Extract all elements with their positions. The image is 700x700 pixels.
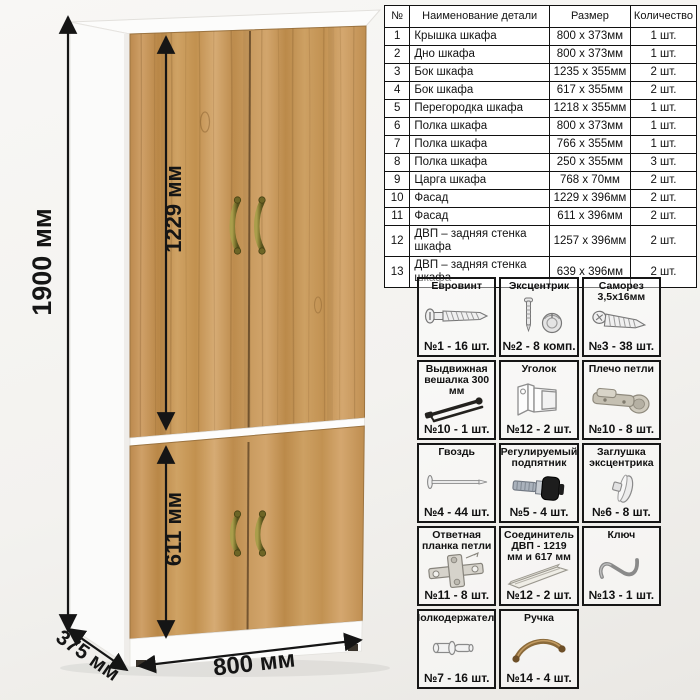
cell-name: Крышка шкафа — [410, 28, 550, 46]
cell-size: 1218 x 355мм — [549, 100, 630, 118]
adjustable-foot-icon — [504, 469, 574, 506]
cell-qty: 3 шт. — [630, 154, 696, 172]
hardware-count: №14 - 4 шт. — [506, 672, 572, 685]
hardware-item-ugolok: Уголок №12 - 2 шт. — [499, 360, 578, 440]
hardware-empty-cell — [582, 609, 661, 689]
table-row: 5Перегородка шкафа1218 x 355мм1 шт. — [385, 100, 697, 118]
hardware-item-podpyatnik: Регулируемый подпятник №5 - 4 шт. — [499, 443, 578, 523]
hardware-item-gvozd: Гвоздь №4 - 44 шт. — [417, 443, 496, 523]
hardware-title: Евровинт — [431, 281, 482, 292]
hardware-count: №10 - 1 шт. — [424, 423, 490, 436]
cell-num: 11 — [385, 208, 410, 226]
hardware-count: №4 - 44 шт. — [424, 506, 490, 519]
lower-door-dim-label: 611 мм — [161, 492, 186, 566]
cell-name: Царга шкафа — [410, 172, 550, 190]
hardware-count: №10 - 8 шт. — [589, 423, 655, 436]
table-row: 12ДВП – задняя стенка шкафа1257 x 396мм2… — [385, 226, 697, 257]
hardware-count: №7 - 16 шт. — [424, 672, 490, 685]
hardware-item-samorez: Саморез 3,5х16мм №3 - 38 шт. — [582, 277, 661, 357]
hardware-item-soedinitel: Соединитель ДВП - 1219 мм и 617 мм №12 -… — [499, 526, 578, 606]
table-row: 1Крышка шкафа800 x 373мм1 шт. — [385, 28, 697, 46]
hardware-count: №3 - 38 шт. — [589, 340, 655, 353]
hardware-item-plecho-petli: Плечо петли №10 - 8 шт. — [582, 360, 661, 440]
cell-size: 800 x 373мм — [549, 28, 630, 46]
col-header-size: Размер — [549, 6, 630, 28]
table-row: 4Бок шкафа617 x 355мм2 шт. — [385, 82, 697, 100]
cell-name: Фасад — [410, 190, 550, 208]
cell-qty: 2 шт. — [630, 190, 696, 208]
key-icon — [586, 541, 656, 589]
hardware-item-eurovint: Евровинт №1 - 16 шт. — [417, 277, 496, 357]
hardware-title: Выдвижная вешалка 300 мм — [420, 364, 493, 397]
hardware-item-polkoderzhatel: Полкодержатель №7 - 16 шт. — [417, 609, 496, 689]
table-row: 7Полка шкафа766 x 355мм1 шт. — [385, 136, 697, 154]
cell-qty: 2 шт. — [630, 226, 696, 257]
table-row: 10Фасад1229 x 396мм2 шт. — [385, 190, 697, 208]
col-header-name: Наименование детали — [410, 6, 550, 28]
hardware-title: Ключ — [607, 530, 635, 541]
cell-num: 8 — [385, 154, 410, 172]
eccentric-cam-icon — [504, 292, 574, 340]
hardware-title: Ручка — [524, 613, 554, 624]
cell-size: 800 x 373мм — [549, 118, 630, 136]
parts-table-header: № Наименование детали Размер Количество — [385, 6, 697, 28]
parts-table: № Наименование детали Размер Количество … — [384, 5, 697, 288]
cell-name: Дно шкафа — [410, 46, 550, 64]
assembly-sheet: 1900 мм 1229 мм 611 мм 800 мм 375 мм № Н… — [0, 0, 700, 700]
hardware-grid: Евровинт №1 - 16 шт. Эксцен — [417, 277, 661, 689]
cell-name: Полка шкафа — [410, 136, 550, 154]
wardrobe-side-panel — [70, 22, 130, 667]
cam-cap-icon — [586, 469, 656, 506]
hardware-title: Гвоздь — [438, 447, 475, 458]
cell-size: 766 x 355мм — [549, 136, 630, 154]
self-tapping-screw-icon — [586, 303, 656, 340]
hardware-item-zaglushka: Заглушка эксцентрика №6 - 8 шт. — [582, 443, 661, 523]
hardware-title: Заглушка эксцентрика — [585, 447, 658, 469]
hdf-connector-icon — [504, 563, 574, 589]
hardware-item-ruchka: Ручка №14 - 4 шт. — [499, 609, 578, 689]
cell-qty: 2 шт. — [630, 64, 696, 82]
cell-size: 1257 x 396мм — [549, 226, 630, 257]
hardware-title: Соединитель ДВП - 1219 мм и 617 мм — [502, 530, 575, 563]
hardware-item-klyuch: Ключ №13 - 1 шт. — [582, 526, 661, 606]
cell-num: 5 — [385, 100, 410, 118]
upper-door-dim-label: 1229 мм — [161, 165, 186, 253]
hardware-title: Плечо петли — [589, 364, 654, 375]
hardware-title: Регулируемый подпятник — [501, 447, 578, 469]
nail-icon — [422, 458, 492, 506]
wardrobe-drawing: 1900 мм 1229 мм 611 мм 800 мм 375 мм — [0, 0, 415, 700]
table-row: 9Царга шкафа768 x 70мм2 шт. — [385, 172, 697, 190]
cell-size: 1229 x 396мм — [549, 190, 630, 208]
hardware-item-otvetnaya-planka: Ответная планка петли №11 - 8 шт. — [417, 526, 496, 606]
hinge-plate-icon — [422, 552, 492, 589]
cell-size: 800 x 373мм — [549, 46, 630, 64]
hardware-count: №12 - 2 шт. — [506, 423, 572, 436]
hardware-count: №12 - 2 шт. — [506, 589, 572, 602]
cell-size: 768 x 70мм — [549, 172, 630, 190]
hardware-count: №6 - 8 шт. — [592, 506, 651, 519]
hardware-item-veshalka: Выдвижная вешалка 300 мм №10 - 1 шт. — [417, 360, 496, 440]
corner-bracket-icon — [504, 375, 574, 423]
cell-num: 12 — [385, 226, 410, 257]
cell-qty: 1 шт. — [630, 118, 696, 136]
hardware-title: Эксцентрик — [509, 281, 569, 292]
hardware-count: №11 - 8 шт. — [424, 589, 489, 602]
cell-name: Бок шкафа — [410, 64, 550, 82]
table-row: 8Полка шкафа250 x 355мм3 шт. — [385, 154, 697, 172]
cell-num: 3 — [385, 64, 410, 82]
hardware-title: Уголок — [522, 364, 557, 375]
cell-name: Фасад — [410, 208, 550, 226]
cell-name: Бок шкафа — [410, 82, 550, 100]
cell-num: 1 — [385, 28, 410, 46]
cell-qty: 1 шт. — [630, 136, 696, 154]
side-edge-shade — [124, 34, 130, 667]
handle-icon — [504, 624, 574, 672]
cell-name: Полка шкафа — [410, 154, 550, 172]
cell-num: 6 — [385, 118, 410, 136]
cell-qty: 2 шт. — [630, 208, 696, 226]
hardware-item-eccentric: Эксцентрик №2 - 8 комп. — [499, 277, 578, 357]
cell-num: 7 — [385, 136, 410, 154]
cell-qty: 1 шт. — [630, 28, 696, 46]
cell-qty: 1 шт. — [630, 100, 696, 118]
cell-size: 611 x 396мм — [549, 208, 630, 226]
cell-num: 9 — [385, 172, 410, 190]
cell-num: 10 — [385, 190, 410, 208]
cell-size: 617 x 355мм — [549, 82, 630, 100]
cell-size: 1235 x 355мм — [549, 64, 630, 82]
cell-qty: 1 шт. — [630, 46, 696, 64]
hardware-title: Саморез 3,5х16мм — [585, 281, 658, 303]
table-row: 11Фасад611 x 396мм2 шт. — [385, 208, 697, 226]
euro-screw-icon — [422, 292, 492, 340]
height-dim-label: 1900 мм — [27, 208, 57, 316]
hardware-title: Полкодержатель — [417, 613, 496, 624]
hardware-count: №1 - 16 шт. — [424, 340, 490, 353]
col-header-qty: Количество — [630, 6, 696, 28]
cell-name: Перегородка шкафа — [410, 100, 550, 118]
hardware-count: №13 - 1 шт. — [589, 589, 655, 602]
table-row: 6Полка шкафа800 x 373мм1 шт. — [385, 118, 697, 136]
shelf-pin-icon — [422, 624, 492, 672]
hardware-count: №5 - 4 шт. — [510, 506, 569, 519]
hardware-count: №2 - 8 комп. — [502, 340, 575, 353]
cell-name: ДВП – задняя стенка шкафа — [410, 226, 550, 257]
cell-num: 4 — [385, 82, 410, 100]
cell-num: 2 — [385, 46, 410, 64]
col-header-num: № — [385, 6, 410, 28]
cell-qty: 2 шт. — [630, 172, 696, 190]
foot-right — [348, 644, 358, 651]
hinge-arm-icon — [586, 375, 656, 423]
cell-num: 13 — [385, 257, 410, 288]
table-row: 2Дно шкафа800 x 373мм1 шт. — [385, 46, 697, 64]
cell-size: 250 x 355мм — [549, 154, 630, 172]
cell-name: Полка шкафа — [410, 118, 550, 136]
cell-qty: 2 шт. — [630, 82, 696, 100]
table-row: 3Бок шкафа1235 x 355мм2 шт. — [385, 64, 697, 82]
pull-out-hanger-icon — [422, 397, 492, 423]
